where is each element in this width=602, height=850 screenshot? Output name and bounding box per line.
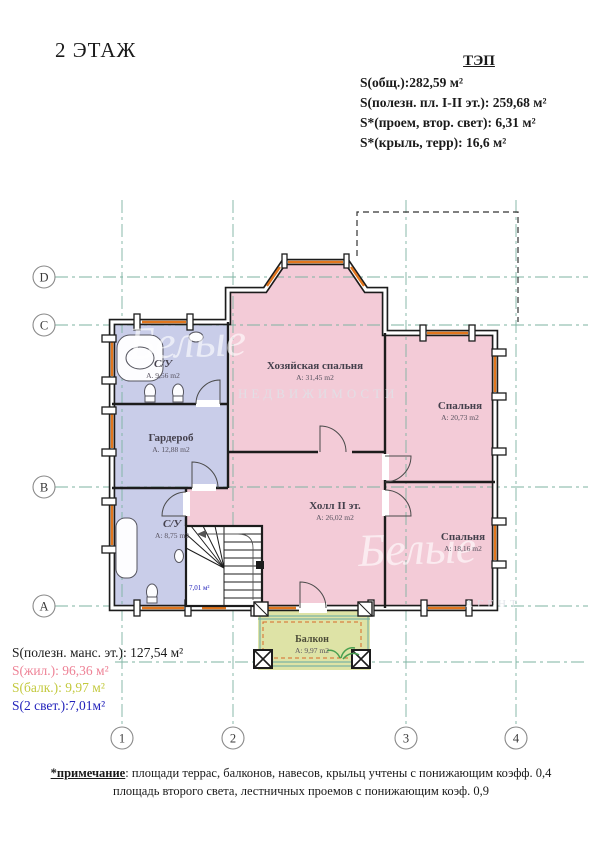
room-label-hall: Холл II эт. А: 26,02 m2 xyxy=(272,500,398,522)
stair-area-label: 7,01 м² xyxy=(189,584,249,592)
axis-row-label: D xyxy=(39,271,48,285)
room-label-master-bedroom: Хозяйская спальня А: 31,45 m2 xyxy=(245,360,385,382)
room-label-su-top: С/У А. 9,56 m2 xyxy=(118,358,208,380)
axis-col-label: 2 xyxy=(230,732,236,746)
stair-post xyxy=(256,561,264,569)
toilet-tank xyxy=(145,396,155,402)
footnote-line1: *примечание: площади террас, балконов, н… xyxy=(0,764,602,782)
floor-plan-drawing: D C B A 1 2 3 4 xyxy=(0,0,602,850)
toilet-tank xyxy=(173,396,183,402)
footnote: *примечание: площади террас, балконов, н… xyxy=(0,764,602,800)
axis-col-label: 3 xyxy=(403,732,409,746)
axis-row-label: C xyxy=(40,319,48,333)
footnote-line2: площадь второго света, лестничных проемо… xyxy=(0,782,602,800)
floor-plan-page: D C B A 1 2 3 4 Белые НЕДВИЖИМОСТИ Белые… xyxy=(0,0,602,850)
axis-col-label: 1 xyxy=(119,732,125,746)
footnote-label: *примечание xyxy=(51,766,126,780)
toilet-tank xyxy=(147,597,157,603)
axis-col-label: 4 xyxy=(513,732,520,746)
room-label-bedroom-bottom: Спальня А: 18,16 m2 xyxy=(405,531,521,553)
summary-line: S(2 свет.):7,01м² xyxy=(12,697,183,715)
sink-icon xyxy=(175,550,184,563)
axis-row-label: A xyxy=(39,600,48,614)
axis-row-label: B xyxy=(40,481,48,495)
area-summary: S(полезн. манс. эт.): 127,54 м² S(жил.):… xyxy=(12,644,183,714)
room-label-wardrobe: Гардероб А. 12,88 m2 xyxy=(123,432,219,454)
room-label-balcony: Балкон А: 9,97 m2 xyxy=(262,634,362,655)
sink-icon xyxy=(189,332,203,342)
room-label-bedroom-top: Спальня А: 20,73 m2 xyxy=(402,400,518,422)
room-label-su-bottom: С/У А: 8,75 m2 xyxy=(126,518,218,540)
summary-line: S(балк.): 9,97 м² xyxy=(12,679,183,697)
room-fill-bedrooms-right xyxy=(385,333,495,608)
footnote-text: : площади террас, балконов, навесов, кры… xyxy=(125,766,551,780)
summary-line: S(полезн. манс. эт.): 127,54 м² xyxy=(12,644,183,662)
summary-line: S(жил.): 96,36 м² xyxy=(12,662,183,680)
